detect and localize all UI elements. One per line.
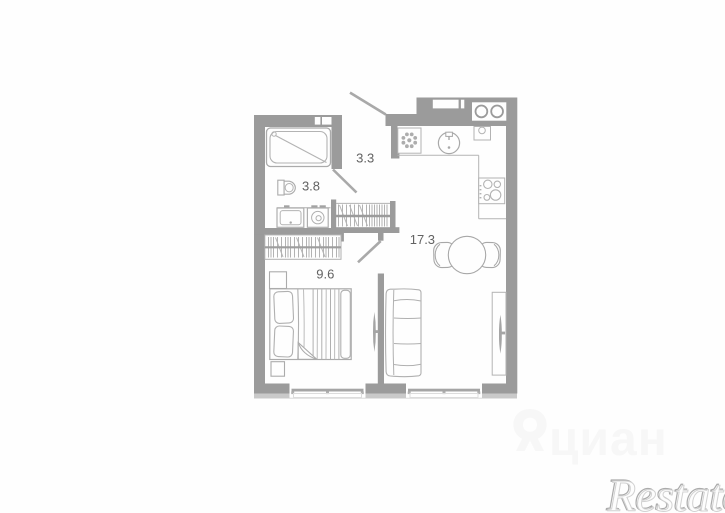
svg-text:17.3: 17.3: [410, 232, 435, 247]
svg-text:9.6: 9.6: [316, 266, 334, 281]
svg-text:3.8: 3.8: [302, 178, 320, 193]
svg-text:3.3: 3.3: [356, 151, 374, 166]
